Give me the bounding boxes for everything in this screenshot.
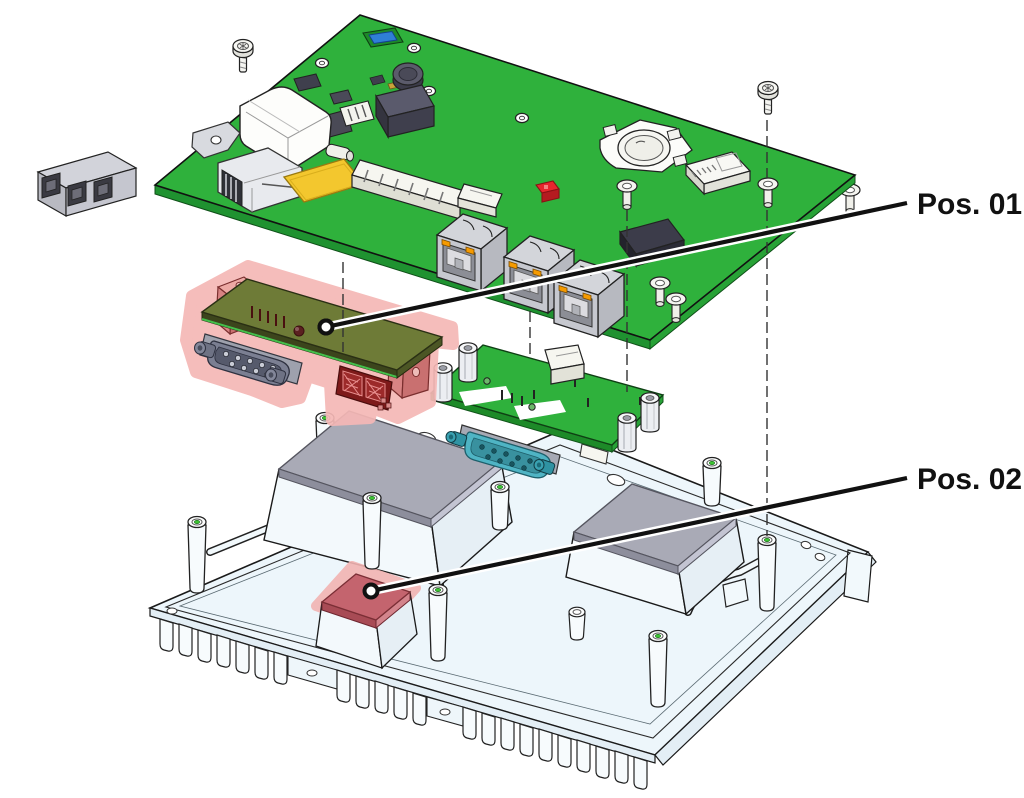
pos02-dot — [365, 585, 378, 598]
adapter-board-hole — [294, 326, 304, 336]
pos01-dot — [320, 321, 333, 334]
diagram-canvas: Pos. 01 Pos. 02 — [0, 0, 1024, 798]
mounting-screw-2 — [758, 82, 778, 115]
callout-label-pos01: Pos. 01 — [917, 188, 1022, 221]
terminal-block — [38, 152, 136, 216]
serial-adapter-board — [186, 266, 453, 420]
io-board-top-connector — [545, 345, 584, 384]
mounting-screw-1 — [233, 40, 253, 73]
mounting-post — [703, 458, 721, 507]
callout-label-pos02: Pos. 02 — [917, 463, 1022, 496]
exploded-view-diagram: Pos. 01 Pos. 02 — [0, 0, 1024, 798]
heatsink-corner-boss — [844, 550, 872, 602]
